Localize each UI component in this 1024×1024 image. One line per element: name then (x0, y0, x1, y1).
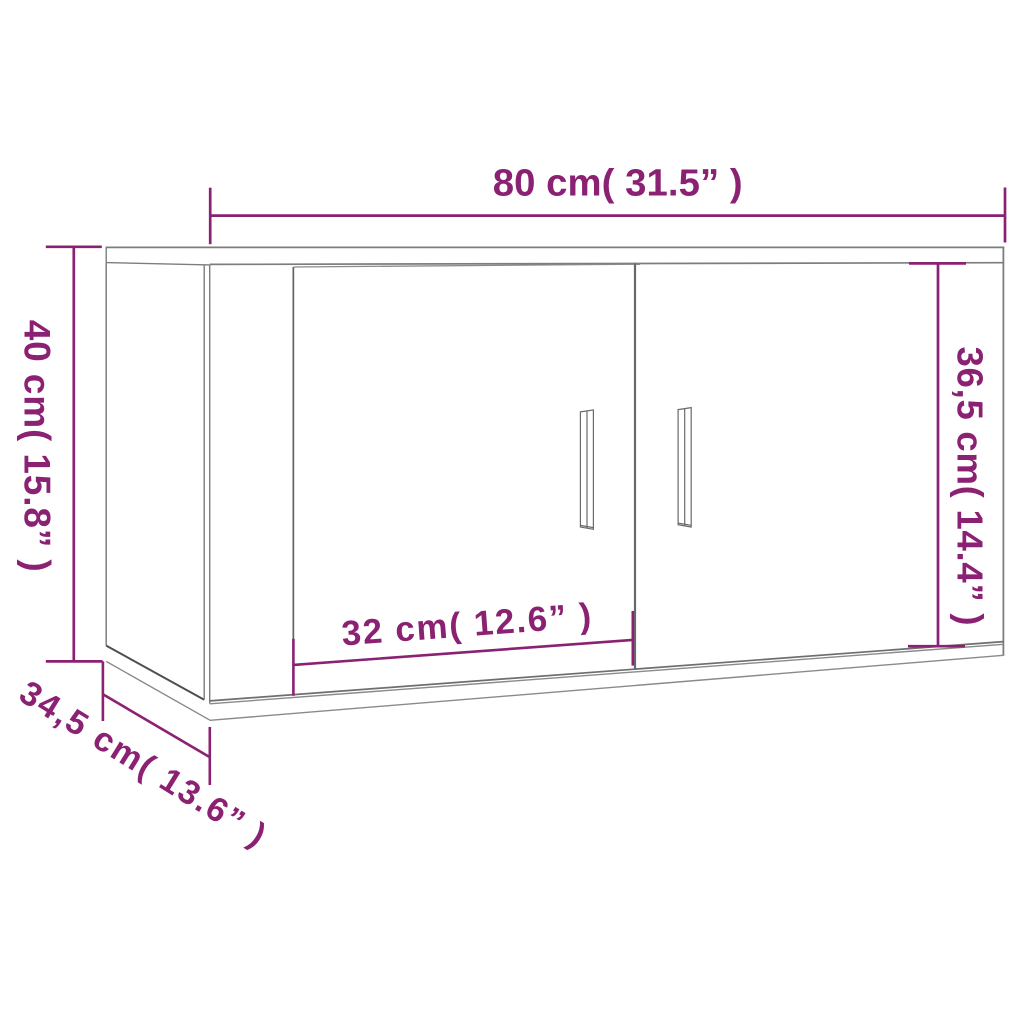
svg-text:80 cm( 31.5” ): 80 cm( 31.5” ) (493, 162, 743, 205)
svg-text:40 cm( 15.8” ): 40 cm( 15.8” ) (16, 320, 57, 572)
svg-text:36,5 cm( 14.4” ): 36,5 cm( 14.4” ) (950, 347, 991, 626)
